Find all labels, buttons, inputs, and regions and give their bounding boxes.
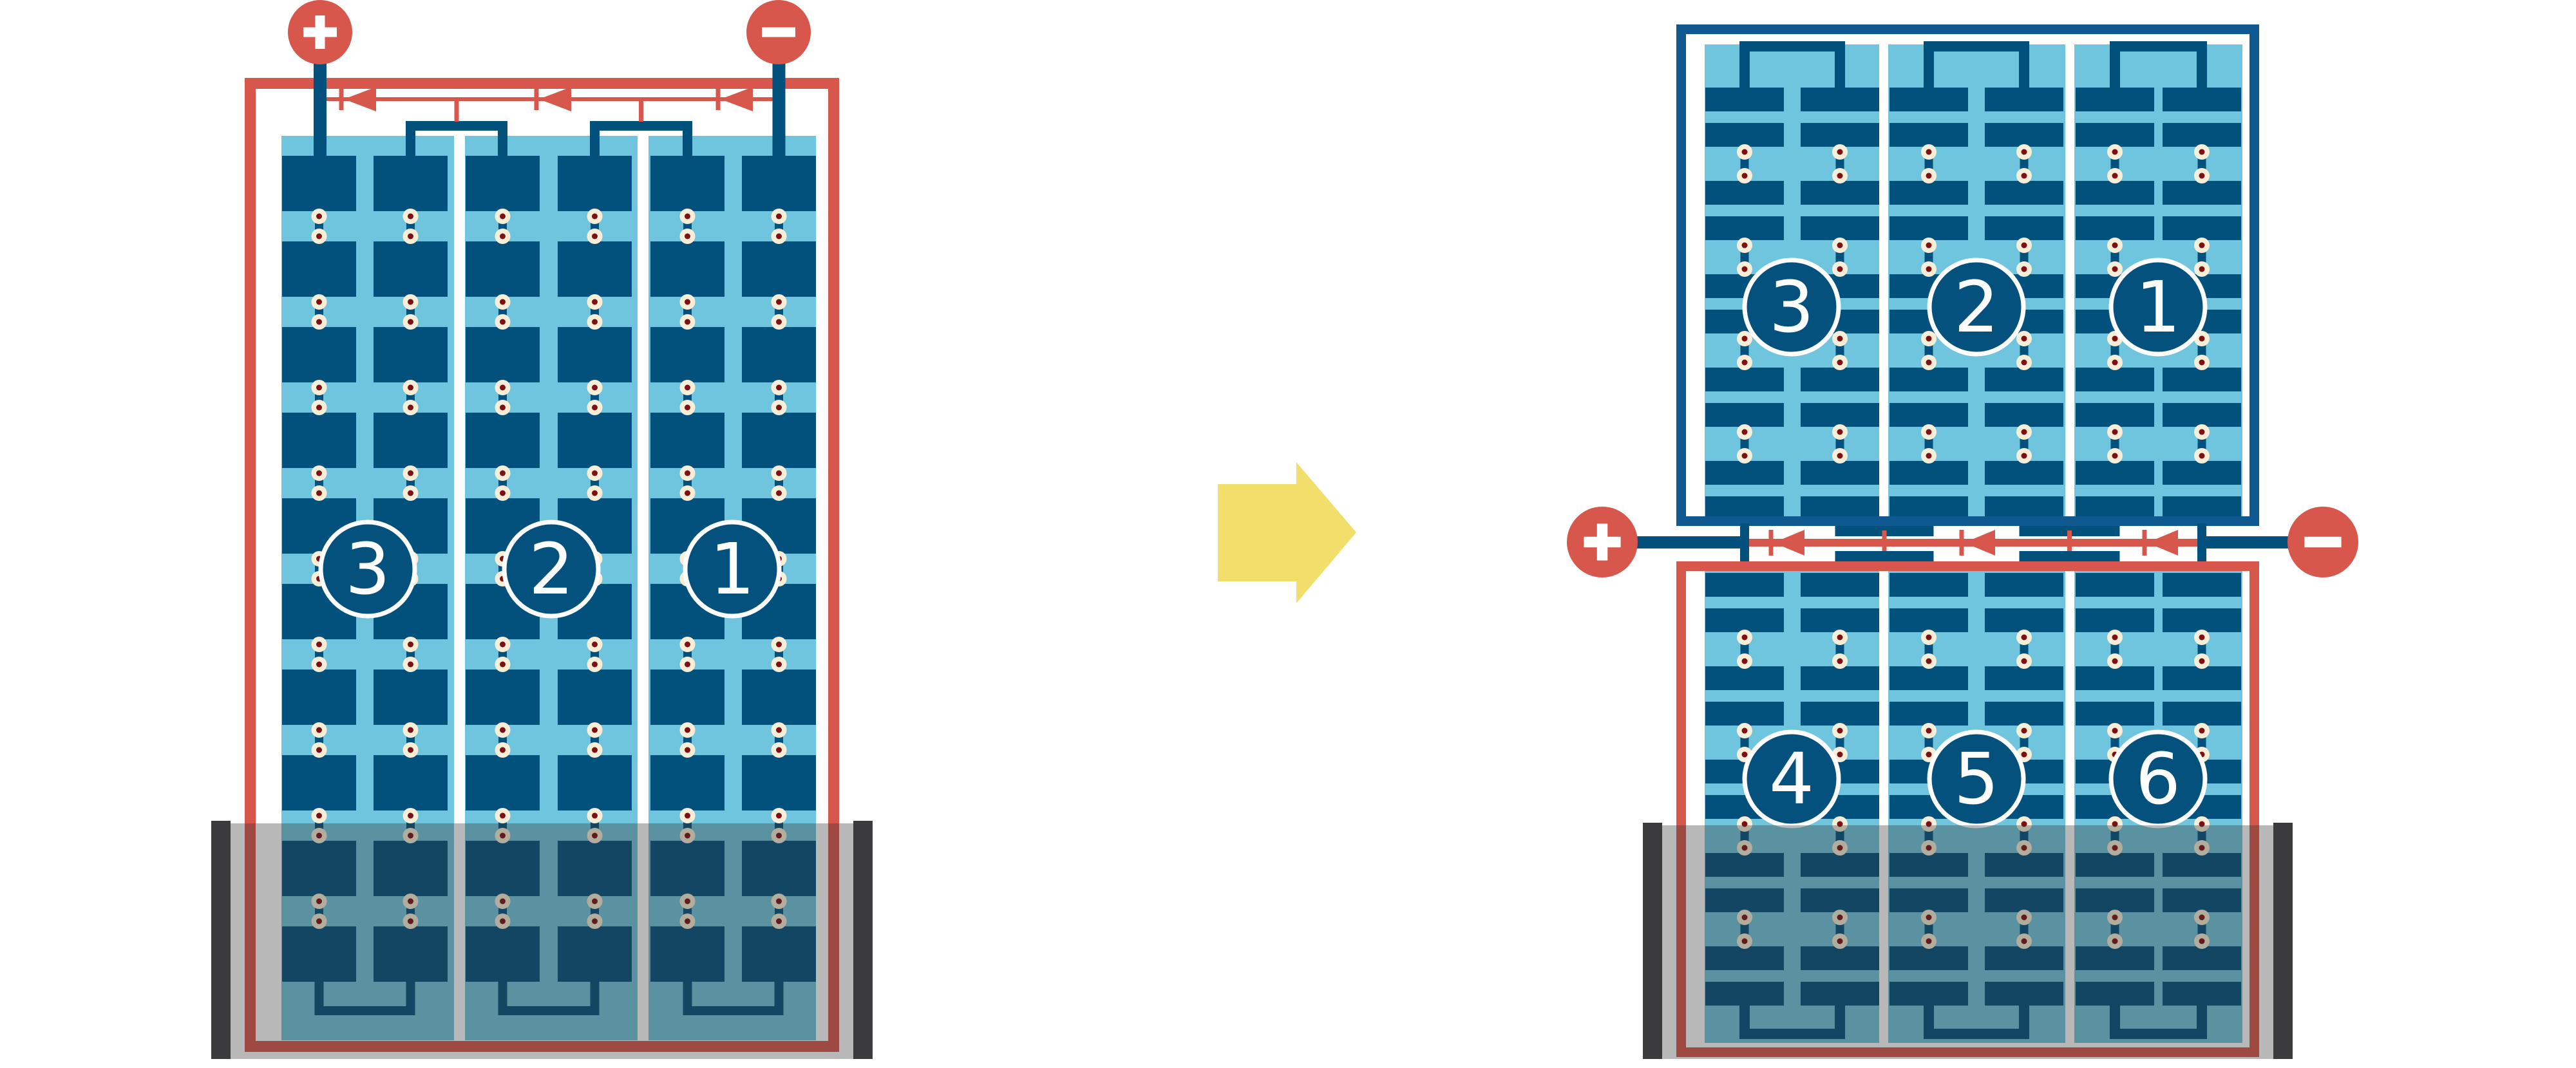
solder-pad-center-icon (1837, 360, 1843, 366)
solar-cell (1889, 573, 1968, 597)
solder-pad-center-icon (776, 813, 782, 819)
solar-cell (650, 413, 724, 468)
solder-pad-center-icon (685, 491, 690, 496)
solder-pad-center-icon (408, 214, 413, 220)
solder-pad-center-icon (1742, 659, 1748, 664)
solder-pad-center-icon (2112, 635, 2118, 641)
solder-pad-center-icon (500, 299, 506, 305)
solder-pad-center-icon (408, 491, 413, 496)
solder-pad-center-icon (500, 747, 506, 753)
solar-cell (374, 241, 448, 297)
solar-cell (282, 156, 356, 211)
solder-pad-center-icon (1837, 752, 1843, 758)
solder-pad-center-icon (408, 385, 413, 391)
solder-pad-center-icon (2112, 267, 2118, 272)
solder-pad-center-icon (685, 385, 690, 391)
solar-cell (2163, 403, 2241, 427)
solder-pad-center-icon (685, 319, 690, 325)
solder-pad-center-icon (776, 491, 782, 496)
solar-cell (1705, 216, 1784, 240)
solar-cell (742, 241, 816, 297)
solder-pad-center-icon (592, 642, 598, 648)
solar-cell (2163, 368, 2241, 391)
solder-pad-center-icon (500, 471, 506, 476)
solder-pad-center-icon (408, 471, 413, 476)
solar-cell (2163, 702, 2241, 726)
solar-cell (2163, 573, 2241, 597)
solder-pad-center-icon (1742, 635, 1748, 641)
solar-cell (1985, 123, 2063, 147)
solder-pad-center-icon (1837, 659, 1843, 664)
solder-pad-center-icon (1837, 453, 1843, 459)
solar-cell (374, 413, 448, 468)
solder-pad-center-icon (1742, 453, 1748, 459)
solder-pad-center-icon (2022, 635, 2027, 641)
solder-pad-center-icon (1926, 659, 1932, 664)
solar-cell (466, 670, 540, 725)
solder-pad-center-icon (1926, 429, 1932, 435)
solder-pad-center-icon (408, 727, 413, 733)
solar-cell (1889, 608, 1968, 632)
minus-glyph-icon (762, 28, 795, 37)
solar-cell (374, 156, 448, 211)
solder-pad-center-icon (2022, 173, 2027, 179)
solar-cell (282, 413, 356, 468)
string-number-label: 1 (710, 528, 755, 610)
solder-pad-center-icon (2199, 173, 2205, 179)
solder-pad-center-icon (500, 405, 506, 411)
negative-terminal-stem (773, 61, 786, 156)
solder-pad-center-icon (408, 813, 413, 819)
solar-cell (466, 413, 540, 468)
solder-pad-center-icon (592, 727, 598, 733)
solar-cell (558, 156, 632, 211)
bypass-diode-triangle-icon (721, 87, 753, 111)
solar-cell (2076, 181, 2154, 205)
bypass-diode-triangle-icon (1964, 530, 1995, 556)
solder-pad-center-icon (592, 319, 598, 325)
solar-cell (558, 327, 632, 382)
string-number-label: 5 (1954, 738, 1999, 820)
solar-cell (650, 327, 724, 382)
shading-overlay (1643, 825, 2293, 1059)
solder-pad-center-icon (500, 214, 506, 220)
solder-pad-center-icon (1926, 173, 1932, 179)
solder-pad-center-icon (685, 727, 690, 733)
solder-pad-center-icon (2022, 728, 2027, 734)
solar-cell (2076, 216, 2154, 240)
solder-pad-center-icon (685, 471, 690, 476)
solder-pad-center-icon (2112, 173, 2118, 179)
solder-pad-center-icon (1837, 149, 1843, 155)
diode-bus-stub (639, 101, 643, 122)
minus-glyph-icon (2304, 537, 2341, 548)
solder-pad-center-icon (2022, 336, 2027, 342)
solder-pad-center-icon (2112, 149, 2118, 155)
solar-cell (1889, 368, 1968, 391)
solar-cell (2163, 88, 2241, 111)
solar-cell (466, 156, 540, 211)
solar-cell (2076, 608, 2154, 632)
solder-pad-center-icon (408, 299, 413, 305)
solar-cell (1985, 461, 2063, 485)
solder-pad-center-icon (776, 299, 782, 305)
solder-pad-center-icon (592, 405, 598, 411)
solder-pad-center-icon (408, 662, 413, 668)
solar-cell (1705, 403, 1784, 427)
shading-overlay (211, 823, 873, 1059)
solder-pad-center-icon (500, 813, 506, 819)
solder-pad-center-icon (2112, 429, 2118, 435)
solar-cell (558, 413, 632, 468)
solder-pad-center-icon (500, 662, 506, 668)
solar-cell (1985, 403, 2063, 427)
solder-pad-center-icon (1742, 360, 1748, 366)
solder-pad-center-icon (316, 727, 322, 733)
solar-cell (374, 327, 448, 382)
solder-pad-center-icon (2022, 267, 2027, 272)
solar-cell (742, 156, 816, 211)
solar-cell (1889, 666, 1968, 690)
solar-cell (1801, 461, 1879, 485)
solder-pad-center-icon (685, 662, 690, 668)
solar-cell (374, 670, 448, 725)
bypass-diode-bar-icon (716, 88, 721, 110)
solder-pad-center-icon (2199, 453, 2205, 459)
solder-pad-center-icon (2022, 659, 2027, 664)
bypass-diode-bar-icon (1960, 530, 1964, 556)
solder-pad-center-icon (2112, 243, 2118, 248)
solder-pad-center-icon (1926, 267, 1932, 272)
solder-pad-center-icon (2199, 149, 2205, 155)
solder-pad-center-icon (685, 747, 690, 753)
solder-pad-center-icon (1926, 453, 1932, 459)
negative-terminal-wire (2202, 536, 2292, 548)
string-number-label: 2 (1954, 266, 1999, 348)
solder-pad-center-icon (1926, 243, 1932, 248)
solder-pad-center-icon (408, 642, 413, 648)
solder-pad-center-icon (408, 319, 413, 325)
solar-cell (2076, 461, 2154, 485)
solder-pad-center-icon (2199, 635, 2205, 641)
solder-pad-center-icon (1926, 360, 1932, 366)
solar-cell (2076, 88, 2154, 111)
solar-cell (2076, 702, 2154, 726)
solar-cell (2076, 666, 2154, 690)
solar-cell (558, 241, 632, 297)
solar-cell (558, 670, 632, 725)
solar-cell (2076, 573, 2154, 597)
plus-glyph-icon (316, 15, 325, 49)
shading-bar-left (211, 821, 231, 1059)
solder-pad-center-icon (776, 662, 782, 668)
solder-pad-center-icon (1742, 149, 1748, 155)
solder-pad-center-icon (316, 214, 322, 220)
solder-pad-center-icon (2199, 659, 2205, 664)
solar-cell (1985, 88, 2063, 111)
solar-cell (742, 755, 816, 810)
bypass-diode-bar-icon (2143, 530, 2147, 556)
solder-pad-center-icon (592, 299, 598, 305)
solar-cell (1889, 461, 1968, 485)
string-number-label: 3 (1769, 266, 1814, 348)
solar-cell (650, 670, 724, 725)
solder-pad-center-icon (1742, 752, 1748, 758)
bypass-diode-triangle-icon (344, 87, 376, 111)
bypass-diode-triangle-icon (2147, 530, 2178, 556)
solar-cell (1801, 181, 1879, 205)
shading-bar-right (2273, 823, 2293, 1059)
solar-cell (2076, 368, 2154, 391)
solar-cell (1705, 608, 1784, 632)
solar-cell (2163, 181, 2241, 205)
solar-cell (2163, 216, 2241, 240)
solar-cell (1889, 88, 1968, 111)
solder-pad-center-icon (1742, 429, 1748, 435)
solder-pad-center-icon (2022, 243, 2027, 248)
solder-pad-center-icon (1837, 728, 1843, 734)
solar-cell (2076, 123, 2154, 147)
solar-cell (1801, 368, 1879, 391)
solar-cell (1705, 461, 1784, 485)
solder-pad-center-icon (2022, 429, 2027, 435)
solder-pad-center-icon (776, 747, 782, 753)
solder-pad-center-icon (592, 214, 598, 220)
solder-pad-center-icon (2199, 728, 2205, 734)
solar-cell (282, 670, 356, 725)
solder-pad-center-icon (2022, 453, 2027, 459)
solder-pad-center-icon (1837, 336, 1843, 342)
solder-pad-center-icon (776, 319, 782, 325)
solder-pad-center-icon (1742, 728, 1748, 734)
solder-pad-center-icon (2022, 752, 2027, 758)
inter-string-bridge (1835, 551, 1934, 561)
solar-cell (1705, 88, 1784, 111)
solder-pad-center-icon (776, 727, 782, 733)
solder-pad-center-icon (1926, 728, 1932, 734)
bypass-diode-bar-icon (339, 88, 344, 110)
solder-pad-center-icon (776, 405, 782, 411)
solar-cell (466, 327, 540, 382)
string-separator (1879, 44, 1888, 516)
solar-cell (282, 241, 356, 297)
transform-arrow-icon (1218, 462, 1356, 603)
solder-pad-center-icon (776, 642, 782, 648)
solder-pad-center-icon (2199, 429, 2205, 435)
solder-pad-center-icon (2112, 360, 2118, 366)
solder-pad-center-icon (592, 662, 598, 668)
solder-pad-center-icon (1742, 336, 1748, 342)
solar-cell (1801, 702, 1879, 726)
solder-pad-center-icon (316, 662, 322, 668)
solar-cell (742, 670, 816, 725)
solar-cell (1705, 181, 1784, 205)
solder-pad-center-icon (685, 405, 690, 411)
solar-cell (742, 413, 816, 468)
solder-pad-center-icon (1926, 149, 1932, 155)
solder-pad-center-icon (2199, 360, 2205, 366)
solder-pad-center-icon (1926, 752, 1932, 758)
solar-cell (2163, 608, 2241, 632)
solder-pad-center-icon (685, 299, 690, 305)
solar-cell (1985, 573, 2063, 597)
bypass-diode-bar-icon (535, 88, 539, 110)
solar-cell (282, 755, 356, 810)
solder-pad-center-icon (316, 491, 322, 496)
solder-pad-center-icon (1926, 336, 1932, 342)
solder-pad-center-icon (1837, 635, 1843, 641)
string-number-label: 4 (1769, 738, 1814, 820)
solar-cell (374, 755, 448, 810)
solder-pad-center-icon (592, 234, 598, 239)
solder-pad-center-icon (776, 471, 782, 476)
solder-pad-center-icon (685, 214, 690, 220)
solar-cell (1705, 573, 1784, 597)
solar-cell (1985, 702, 2063, 726)
solder-pad-center-icon (592, 385, 598, 391)
solder-pad-center-icon (1837, 173, 1843, 179)
bypass-diode-bar-icon (1769, 530, 1774, 556)
string-number-label: 2 (529, 528, 574, 610)
solar-cell (1705, 702, 1784, 726)
solder-pad-center-icon (592, 471, 598, 476)
solar-cell (466, 241, 540, 297)
solder-pad-center-icon (592, 491, 598, 496)
plus-glyph-icon (1597, 523, 1608, 560)
solder-pad-center-icon (2112, 336, 2118, 342)
solder-pad-center-icon (1926, 635, 1932, 641)
solar-cell (1801, 403, 1879, 427)
solar-cell (2163, 461, 2241, 485)
solder-pad-center-icon (2199, 267, 2205, 272)
solder-pad-center-icon (2199, 243, 2205, 248)
solar-cell (1889, 123, 1968, 147)
solder-pad-center-icon (1742, 267, 1748, 272)
solar-cell (650, 241, 724, 297)
solder-pad-center-icon (776, 385, 782, 391)
diode-bus-stub (455, 101, 459, 122)
solder-pad-center-icon (685, 813, 690, 819)
positive-terminal-wire (1636, 536, 1745, 548)
solar-cell (1985, 608, 2063, 632)
solar-cell (1705, 368, 1784, 391)
solder-pad-center-icon (2022, 360, 2027, 366)
solder-pad-center-icon (2112, 728, 2118, 734)
solder-pad-center-icon (316, 813, 322, 819)
solar-cell (650, 755, 724, 810)
solder-pad-center-icon (592, 747, 598, 753)
solar-cell (742, 327, 816, 382)
solder-pad-center-icon (316, 385, 322, 391)
solder-pad-center-icon (500, 642, 506, 648)
solder-pad-center-icon (316, 299, 322, 305)
solar-cell (1889, 403, 1968, 427)
solar-cell (1889, 181, 1968, 205)
solar-cell (1985, 368, 2063, 391)
solar-cell (558, 755, 632, 810)
solar-cell (2163, 123, 2241, 147)
solar-cell (1705, 123, 1784, 147)
solder-pad-center-icon (2112, 659, 2118, 664)
string-number-label: 1 (2136, 266, 2181, 348)
solder-pad-center-icon (408, 405, 413, 411)
solder-pad-center-icon (1742, 173, 1748, 179)
string-number-label: 3 (345, 528, 390, 610)
solder-pad-center-icon (2112, 453, 2118, 459)
bypass-diode-triangle-icon (539, 87, 571, 111)
solar-cell (1801, 666, 1879, 690)
solar-cell (282, 327, 356, 382)
solar-cell (1889, 702, 1968, 726)
solder-pad-center-icon (316, 471, 322, 476)
solar-cell (1801, 216, 1879, 240)
solder-pad-center-icon (316, 405, 322, 411)
solar-cell (1801, 123, 1879, 147)
solar-cell (1801, 573, 1879, 597)
solder-pad-center-icon (500, 234, 506, 239)
solder-pad-center-icon (685, 234, 690, 239)
solder-pad-center-icon (1742, 243, 1748, 248)
solder-pad-center-icon (316, 234, 322, 239)
solder-pad-center-icon (316, 642, 322, 648)
solder-pad-center-icon (1837, 429, 1843, 435)
shading-bar-left (1643, 823, 1662, 1059)
solder-pad-center-icon (316, 319, 322, 325)
solder-pad-center-icon (776, 214, 782, 220)
solder-pad-center-icon (776, 234, 782, 239)
string-separator (2065, 44, 2074, 516)
solder-pad-center-icon (408, 234, 413, 239)
solar-cell (466, 755, 540, 810)
solder-pad-center-icon (316, 747, 322, 753)
solar-cell (1985, 666, 2063, 690)
solar-cell (1985, 216, 2063, 240)
solar-cell (1985, 181, 2063, 205)
inter-string-bridge (2020, 551, 2120, 561)
solar-module-diagram: 321321456 (0, 0, 2576, 1068)
solar-cell (1889, 216, 1968, 240)
shading-bar-right (853, 821, 873, 1059)
solder-pad-center-icon (685, 642, 690, 648)
solder-pad-center-icon (500, 727, 506, 733)
solar-cell (1705, 666, 1784, 690)
solar-cell (2163, 666, 2241, 690)
bypass-diode-triangle-icon (1774, 530, 1804, 556)
solar-cell (1801, 88, 1879, 111)
solder-pad-center-icon (500, 491, 506, 496)
string-number-label: 6 (2136, 738, 2181, 820)
solder-pad-center-icon (500, 319, 506, 325)
solar-cell (2076, 403, 2154, 427)
positive-terminal-stem (314, 61, 327, 156)
solder-pad-center-icon (408, 747, 413, 753)
diagram-stage: 321321456 (0, 0, 2576, 1068)
solder-pad-center-icon (1837, 243, 1843, 248)
solder-pad-center-icon (1837, 267, 1843, 272)
solder-pad-center-icon (2199, 336, 2205, 342)
solder-pad-center-icon (500, 385, 506, 391)
solar-cell (650, 156, 724, 211)
solar-cell (1801, 608, 1879, 632)
solder-pad-center-icon (2022, 149, 2027, 155)
solder-pad-center-icon (592, 813, 598, 819)
